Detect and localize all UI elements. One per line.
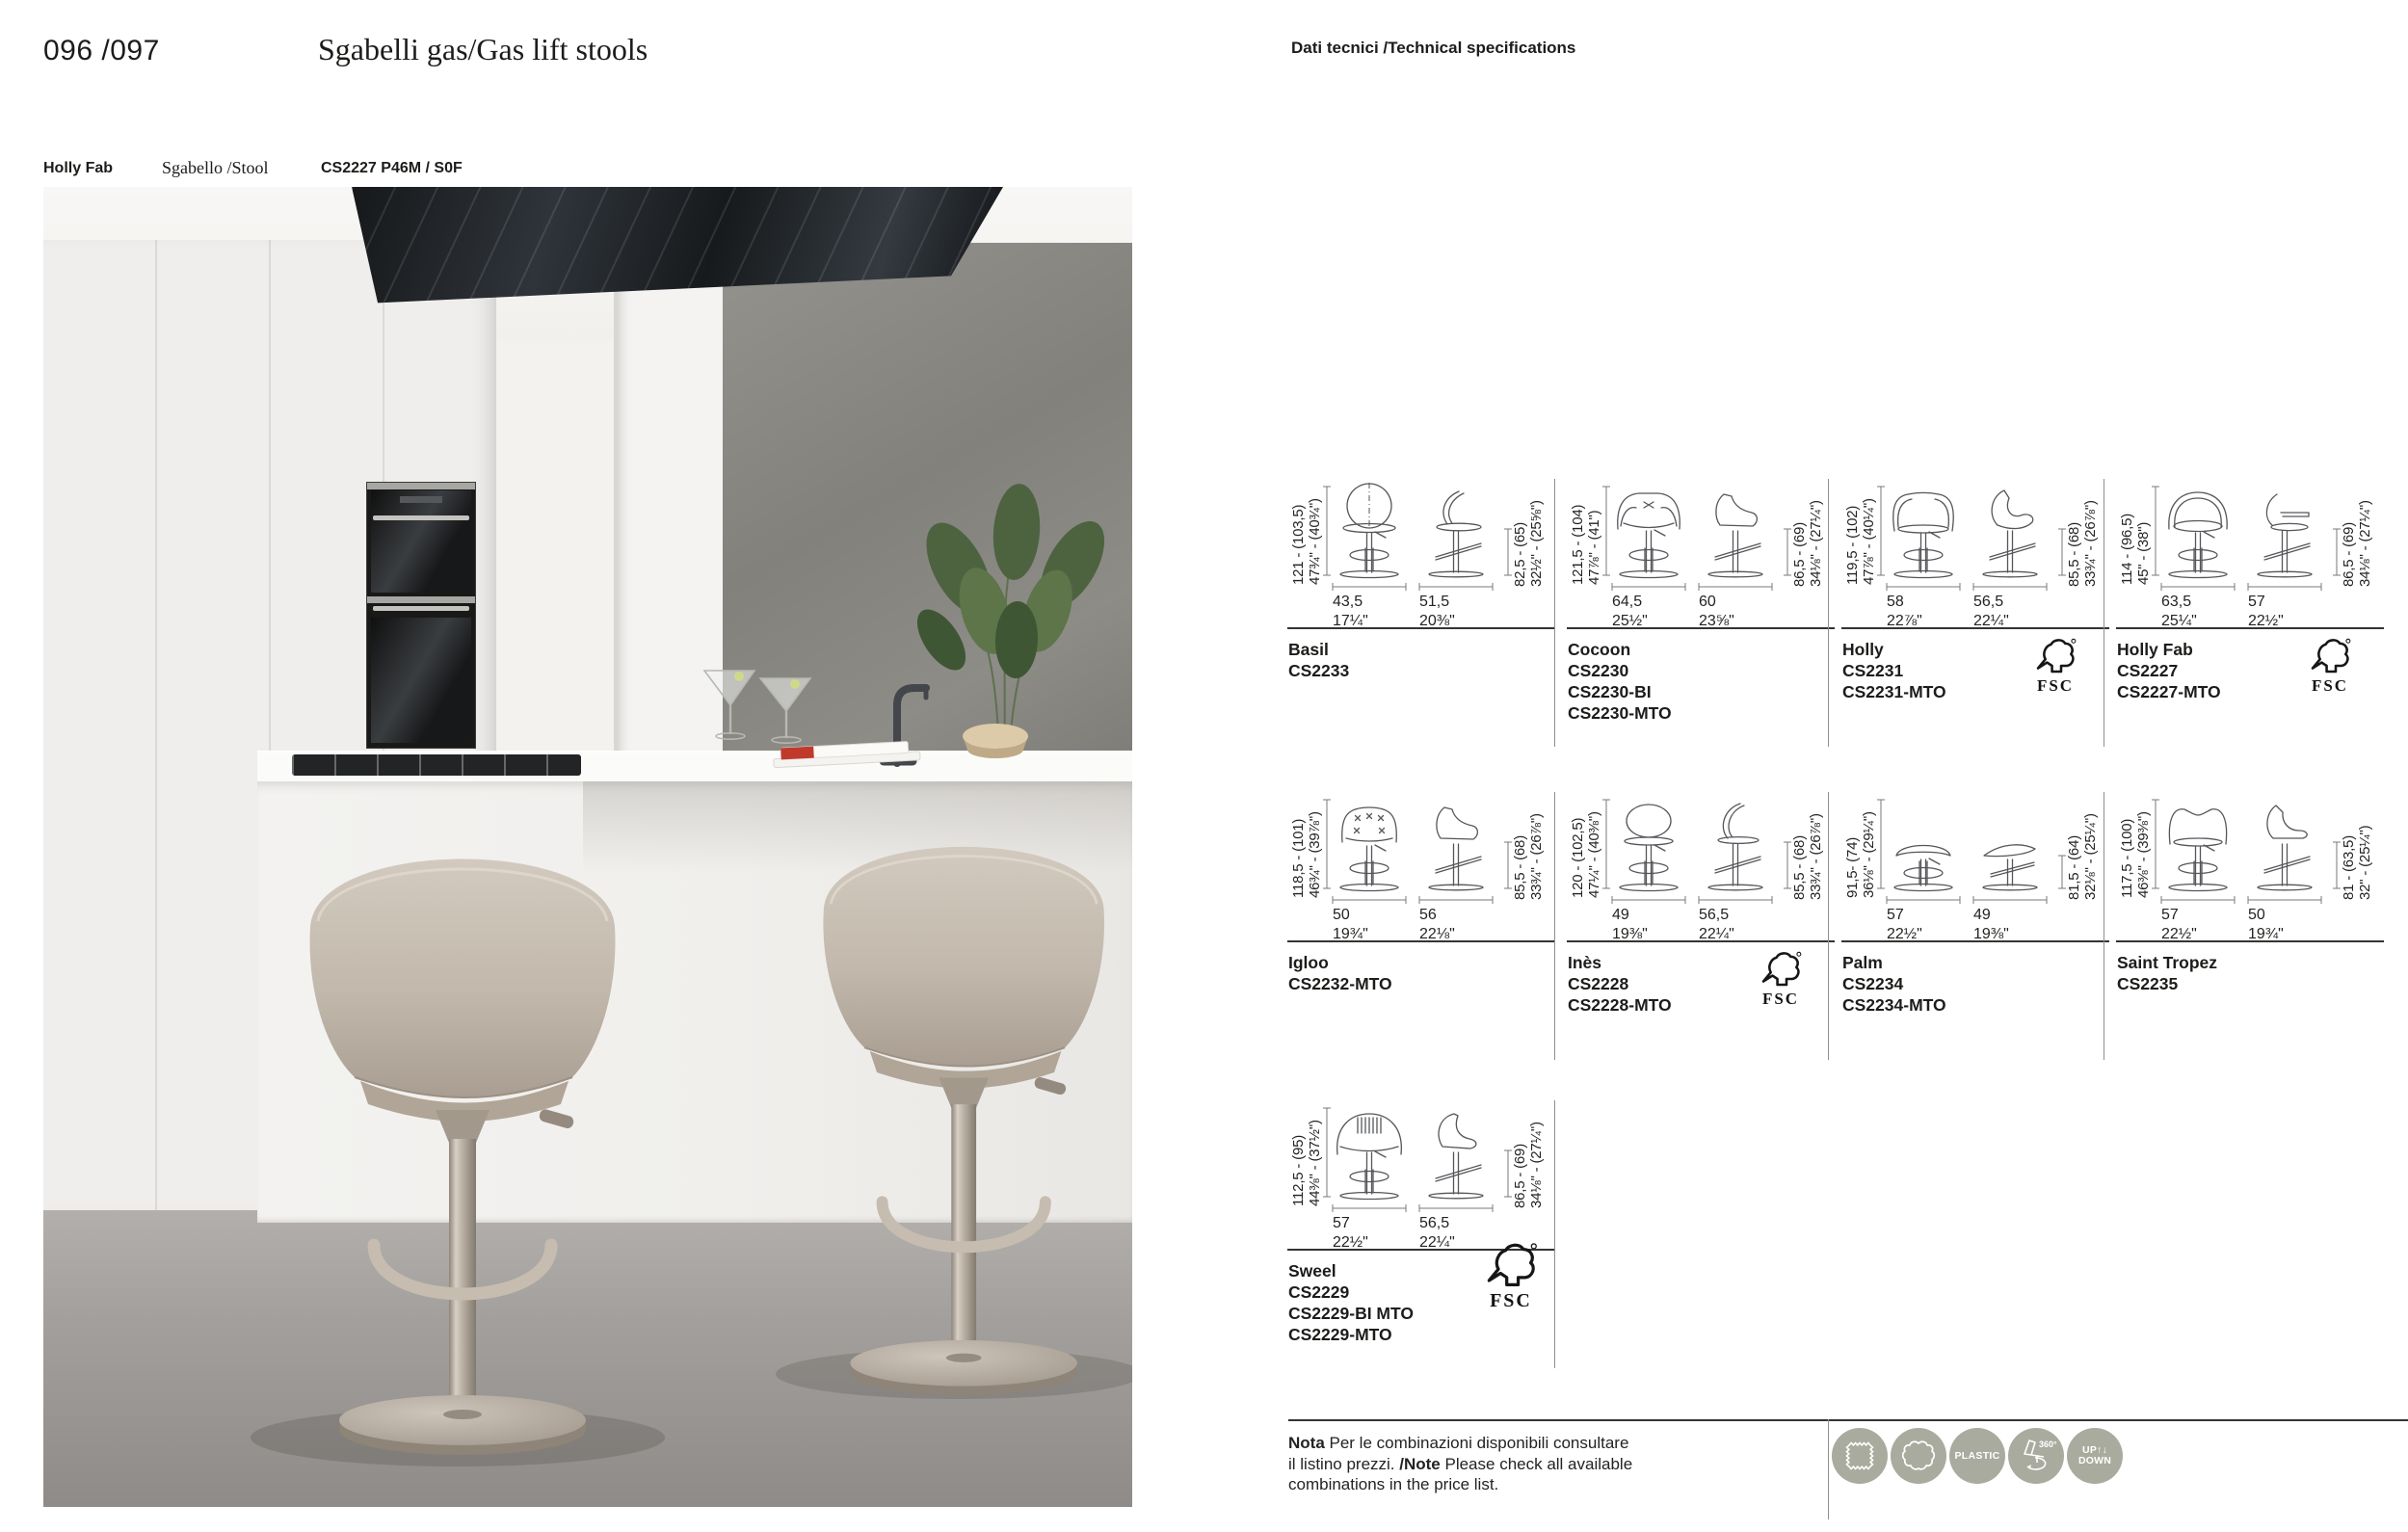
model-code: CS2233 (1288, 660, 1349, 681)
model-name-block: InèsCS2228CS2228-MTO (1568, 952, 1672, 1016)
model-name-block: BasilCS2233 (1288, 639, 1349, 681)
seat-height-dimension: 86,5 - (69)34⅛" - (27¼") (1513, 1093, 1545, 1208)
model-name-block: Holly FabCS2227CS2227-MTO (2117, 639, 2221, 702)
note-span: Per le combinazioni disponibili consulta… (1325, 1434, 1629, 1452)
column-divider (1828, 479, 1829, 747)
model-code: CS2229-BI MTO (1288, 1303, 1414, 1324)
note-top-rule (1288, 1419, 2408, 1421)
spec-cell-palm: 91,5- (74)36⅛" - (29¼") 81,5 - (64)32⅛" … (1842, 792, 2108, 1073)
seat-height-dimension: 82,5 - (65)32½" - (25⅝") (1513, 471, 1545, 587)
width-dimension-front: 5822⅞" (1887, 593, 1922, 631)
kitchen-photo (43, 187, 1132, 1507)
model-name: Cocoon (1568, 639, 1672, 660)
seat-height-dimension: 85,5 - (68)33¾" - (26⅞") (1513, 784, 1545, 900)
model-code: CS2228 (1568, 973, 1672, 994)
model-code: CS2227-MTO (2117, 681, 2221, 702)
fsc-tree-icon (1759, 950, 1803, 987)
note-span: Please check all available (1441, 1455, 1632, 1473)
seat-height-dimension: 81,5 - (64)32⅛" - (25¼") (2067, 784, 2099, 900)
seat-height-dimension: 85,5 - (68)33¾" - (26⅞") (1792, 784, 1824, 900)
model-code: CS2234 (1842, 973, 1946, 994)
plastic-label: PLASTIC (1954, 1450, 1999, 1462)
height-dimension: 120 - (102,5)47¼" - (40⅜") (1571, 782, 1602, 898)
width-dimension-side: 51,520⅜" (1419, 593, 1455, 631)
model-code: CS2232-MTO (1288, 973, 1392, 994)
model-name: Igloo (1288, 952, 1392, 973)
model-name-block: HollyCS2231CS2231-MTO (1842, 639, 1946, 702)
height-dimension: 91,5- (74)36⅛" - (29¼") (1845, 782, 1877, 898)
photo-foreground (43, 649, 1132, 1507)
cell-rule (1567, 940, 1835, 942)
note-bold: Nota (1288, 1434, 1325, 1452)
column-divider (1828, 792, 1829, 1060)
model-name-block: PalmCS2234CS2234-MTO (1842, 952, 1946, 1016)
column-divider (2104, 792, 2104, 1060)
width-dimension-front: 5722½" (1887, 906, 1922, 944)
fsc-logo: FSC (1759, 950, 1803, 1009)
note-badges-divider (1828, 1419, 1829, 1519)
model-name: Palm (1842, 952, 1946, 973)
note-span: il listino prezzi. (1288, 1455, 1399, 1473)
cell-rule (1841, 940, 2109, 942)
feature-badges: PLASTIC 360°UP↑↓DOWN (1832, 1428, 2123, 1484)
note-span: combinations in the price list. (1288, 1475, 1498, 1493)
spec-cell-cocoon: 121,5 - (104)47⅞" - (41") 86,5 - (69)34⅛… (1568, 479, 1834, 760)
width-dimension-side: 56,522¼" (1699, 906, 1734, 944)
plastic-icon: PLASTIC (1949, 1428, 2005, 1484)
width-dimension-front: 63,525¼" (2161, 593, 2197, 631)
seat-height-dimension: 85,5 - (68)33¾" - (26⅞") (2067, 471, 2099, 587)
spec-cell-igloo: 118,5 - (101)46¾" - (39⅞") 85,5 - (68)33… (1288, 792, 1554, 1073)
seat-height-dimension: 86,5 - (69)34⅛" - (27¼") (1792, 471, 1824, 587)
fsc-tree-icon (2033, 637, 2077, 674)
height-dimension: 121,5 - (104)47⅞" - (41") (1571, 469, 1602, 585)
model-code: CS2235 (2117, 973, 2217, 994)
caption-product-code: CS2227 P46M / S0F (321, 160, 463, 177)
up-down-icon: UP↑↓DOWN (2067, 1428, 2123, 1484)
fsc-logo: FSC (2308, 637, 2352, 696)
cell-rule (2116, 940, 2384, 942)
model-name: Inès (1568, 952, 1672, 973)
cell-rule (1841, 627, 2109, 629)
model-name-block: Saint TropezCS2235 (2117, 952, 2217, 994)
width-dimension-front: 5019¾" (1333, 906, 1368, 944)
cell-rule (2116, 627, 2384, 629)
model-name-block: CocoonCS2230CS2230-BICS2230-MTO (1568, 639, 1672, 724)
bar-stool-back (823, 847, 1104, 1395)
spec-cell-hollyfab: 114 - (96,5)45" - (38") 86,5 - (69)34⅛" … (2117, 479, 2383, 760)
column-divider (1554, 1100, 1555, 1368)
height-dimension: 119,5 - (102)47⅞" - (40¼") (1845, 469, 1877, 585)
fsc-tree-icon (2308, 637, 2352, 674)
cell-rule (1567, 627, 1835, 629)
spec-cell-sainttropez: 117,5 - (100)46⅜" - (39⅜") 81 - (63,5)32… (2117, 792, 2383, 1073)
model-name: Saint Tropez (2117, 952, 2217, 973)
seat-height-dimension: 86,5 - (69)34⅛" - (27¼") (2342, 471, 2373, 587)
model-code: CS2234-MTO (1842, 994, 1946, 1016)
bar-stool-front (310, 859, 616, 1456)
cell-rule (1287, 627, 1555, 629)
width-dimension-side: 56,522¼" (1419, 1214, 1455, 1253)
fabric-swatch-icon (1832, 1428, 1888, 1484)
height-dimension: 114 - (96,5)45" - (38") (2120, 469, 2152, 585)
martini-glasses (704, 671, 810, 743)
height-dimension: 121 - (103,5)47¾" - (40¾") (1291, 469, 1323, 585)
spec-cell-sweel: 112,5 - (95)44⅜" - (37½") 86,5 - (69)34⅛… (1288, 1100, 1554, 1382)
spec-cell-basil: 121 - (103,5)47¾" - (40¾") 82,5 - (65)32… (1288, 479, 1554, 760)
model-name-block: SweelCS2229CS2229-BI MTOCS2229-MTO (1288, 1260, 1414, 1345)
model-code: CS2229-MTO (1288, 1324, 1414, 1345)
svg-text:360°: 360° (2039, 1440, 2057, 1449)
note-bold: /Note (1399, 1455, 1441, 1473)
width-dimension-side: 5019¾" (2248, 906, 2284, 944)
model-code: CS2230-MTO (1568, 702, 1672, 724)
width-dimension-side: 5622⅛" (1419, 906, 1455, 944)
caption-model-name: Holly Fab (43, 160, 113, 177)
model-code: CS2231-MTO (1842, 681, 1946, 702)
page-title: Sgabelli gas/Gas lift stools (318, 32, 648, 67)
model-code: CS2231 (1842, 660, 1946, 681)
width-dimension-front: 5722½" (2161, 906, 2197, 944)
model-code: CS2228-MTO (1568, 994, 1672, 1016)
fsc-logo: FSC (1483, 1241, 1539, 1312)
width-dimension-front: 4919⅜" (1612, 906, 1648, 944)
leather-icon (1891, 1428, 1946, 1484)
wooden-bowl (963, 724, 1028, 758)
model-name: Holly Fab (2117, 639, 2221, 660)
width-dimension-front: 43,517¼" (1333, 593, 1368, 631)
width-dimension-side: 5722½" (2248, 593, 2284, 631)
seat-height-dimension: 81 - (63,5)32" - (25¼") (2342, 784, 2373, 900)
swivel-360-icon: 360° (2008, 1428, 2064, 1484)
model-name-block: IglooCS2232-MTO (1288, 952, 1392, 994)
catalog-page: 096 /097 Sgabelli gas/Gas lift stools Da… (0, 0, 2408, 1532)
width-dimension-side: 4919⅜" (1973, 906, 2009, 944)
model-name: Sweel (1288, 1260, 1414, 1281)
model-code: CS2230 (1568, 660, 1672, 681)
column-divider (1554, 792, 1555, 1060)
page-numbers: 096 /097 (43, 35, 160, 67)
column-divider (2104, 479, 2104, 747)
height-dimension: 118,5 - (101)46¾" - (39⅞") (1291, 782, 1323, 898)
width-dimension-side: 6023⅝" (1699, 593, 1734, 631)
height-dimension: 112,5 - (95)44⅜" - (37½") (1291, 1091, 1323, 1206)
up-down-label: UP↑↓DOWN (2078, 1445, 2111, 1467)
model-code: CS2230-BI (1568, 681, 1672, 702)
spec-cell-holly: 119,5 - (102)47⅞" - (40¼") 85,5 - (68)33… (1842, 479, 2108, 760)
model-name: Holly (1842, 639, 1946, 660)
column-divider (1554, 479, 1555, 747)
tech-specs-label: Dati tecnici /Technical specifications (1291, 39, 1575, 58)
height-dimension: 117,5 - (100)46⅜" - (39⅜") (2120, 782, 2152, 898)
fsc-logo: FSC (2033, 637, 2077, 696)
note-text: Nota Per le combinazioni disponibili con… (1288, 1433, 1741, 1495)
width-dimension-side: 56,522¼" (1973, 593, 2009, 631)
model-code: CS2227 (2117, 660, 2221, 681)
model-name: Basil (1288, 639, 1349, 660)
cell-rule (1287, 940, 1555, 942)
width-dimension-front: 5722½" (1333, 1214, 1368, 1253)
model-code: CS2229 (1288, 1281, 1414, 1303)
spec-cell-ines: 120 - (102,5)47¼" - (40⅜") 85,5 - (68)33… (1568, 792, 1834, 1073)
caption-product-type: Sgabello /Stool (162, 158, 269, 178)
width-dimension-front: 64,525½" (1612, 593, 1648, 631)
fsc-tree-icon (1483, 1241, 1539, 1287)
